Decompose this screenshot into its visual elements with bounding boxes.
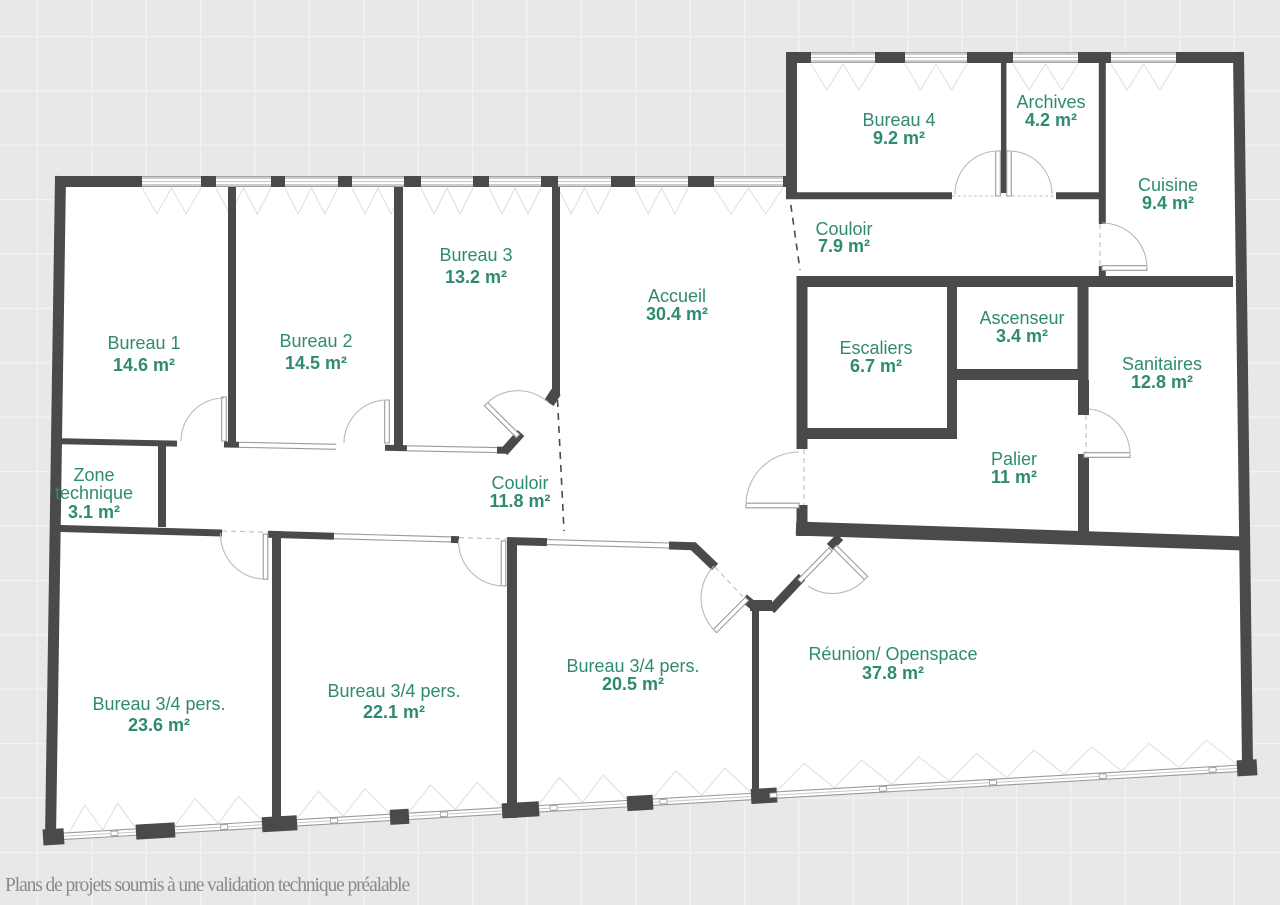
svg-text:Bureau 1: Bureau 1 <box>107 333 180 353</box>
svg-text:Couloir: Couloir <box>491 473 548 493</box>
svg-text:11.8 m²: 11.8 m² <box>489 491 550 511</box>
svg-text:Palier: Palier <box>991 449 1037 469</box>
svg-text:Accueil: Accueil <box>648 286 706 306</box>
svg-text:30.4 m²: 30.4 m² <box>646 304 708 324</box>
svg-text:Escaliers: Escaliers <box>839 338 912 358</box>
svg-text:23.6 m²: 23.6 m² <box>128 715 190 735</box>
svg-text:Ascenseur: Ascenseur <box>979 308 1064 328</box>
svg-text:22.1 m²: 22.1 m² <box>363 702 425 722</box>
svg-text:Sanitaires: Sanitaires <box>1122 354 1202 374</box>
svg-text:7.9 m²: 7.9 m² <box>818 236 870 256</box>
svg-text:20.5 m²: 20.5 m² <box>602 674 664 694</box>
svg-text:Bureau 3: Bureau 3 <box>439 245 512 265</box>
svg-text:4.2 m²: 4.2 m² <box>1025 110 1077 130</box>
svg-text:11 m²: 11 m² <box>991 467 1037 487</box>
svg-text:Plans de projets soumis à une: Plans de projets soumis à une validation… <box>5 875 409 896</box>
svg-text:3.4 m²: 3.4 m² <box>996 326 1048 346</box>
svg-text:Bureau 2: Bureau 2 <box>279 331 352 351</box>
svg-text:Bureau 3/4 pers.: Bureau 3/4 pers. <box>327 681 460 701</box>
svg-text:technique: technique <box>55 483 133 503</box>
svg-text:9.4 m²: 9.4 m² <box>1142 193 1194 213</box>
svg-text:3.1 m²: 3.1 m² <box>68 502 120 522</box>
svg-text:Bureau 3/4 pers.: Bureau 3/4 pers. <box>92 694 225 714</box>
svg-text:Bureau 3/4 pers.: Bureau 3/4 pers. <box>566 656 699 676</box>
svg-text:6.7 m²: 6.7 m² <box>850 356 902 376</box>
svg-text:14.5 m²: 14.5 m² <box>285 353 347 373</box>
svg-text:Bureau 4: Bureau 4 <box>862 110 935 130</box>
svg-text:12.8 m²: 12.8 m² <box>1131 372 1193 392</box>
svg-text:Zone: Zone <box>73 465 114 485</box>
svg-text:13.2 m²: 13.2 m² <box>445 267 507 287</box>
svg-text:Archives: Archives <box>1016 92 1085 112</box>
svg-text:Réunion/ Openspace: Réunion/ Openspace <box>808 644 977 664</box>
svg-text:37.8 m²: 37.8 m² <box>862 663 924 683</box>
svg-text:Cuisine: Cuisine <box>1138 175 1198 195</box>
svg-text:9.2 m²: 9.2 m² <box>873 128 925 148</box>
svg-text:14.6 m²: 14.6 m² <box>113 355 175 375</box>
